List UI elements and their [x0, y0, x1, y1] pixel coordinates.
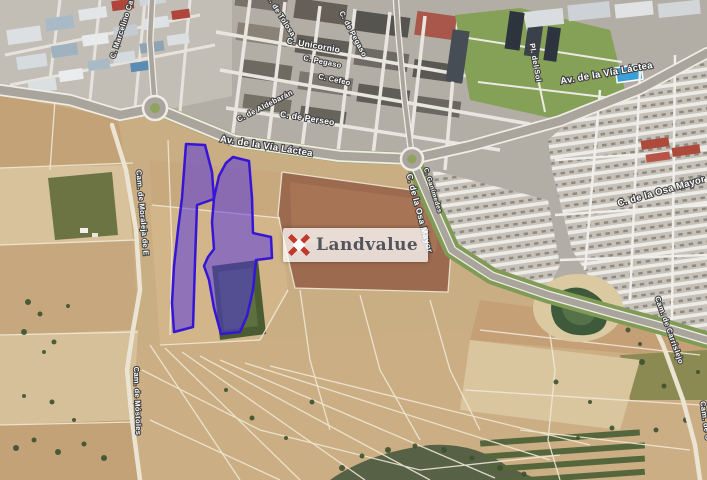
roundabout-east — [401, 148, 423, 170]
landvalue-cross-icon — [287, 233, 311, 257]
landvalue-watermark: Landvalue — [283, 228, 428, 262]
landvalue-brand-text: Landvalue — [316, 237, 418, 254]
roundabout-west — [143, 96, 167, 120]
map-canvas[interactable]: C. Marcelino CaC. de TolosaC. UnicornioC… — [0, 0, 707, 480]
